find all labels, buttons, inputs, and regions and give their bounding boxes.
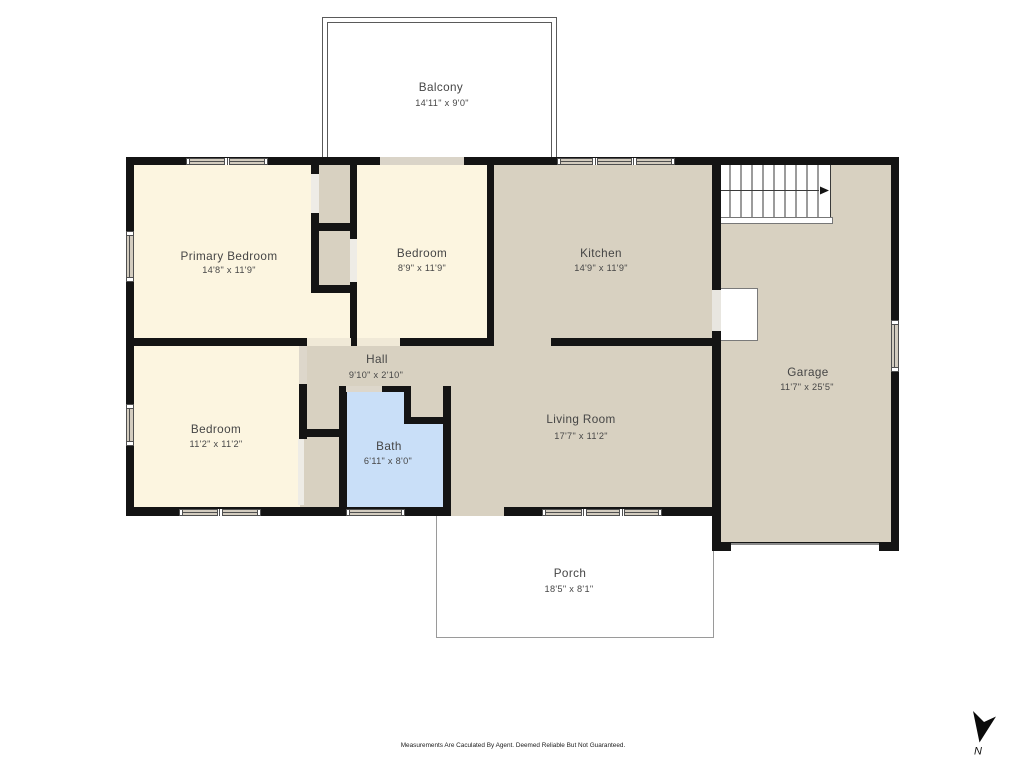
svg-text:N: N xyxy=(974,746,982,758)
